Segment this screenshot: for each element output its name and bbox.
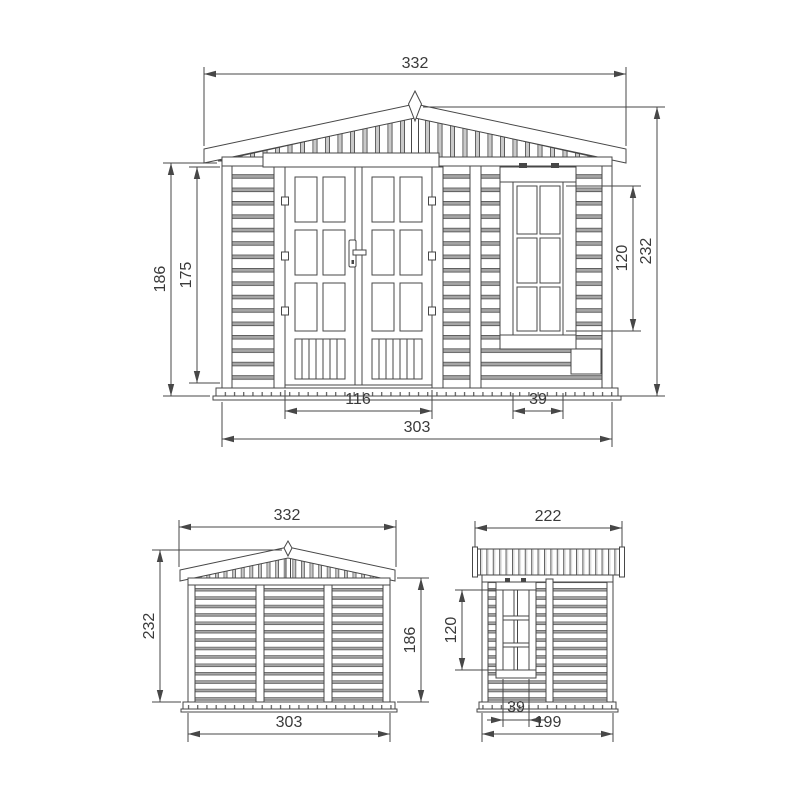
front-dim-window-width: 39 bbox=[529, 391, 547, 408]
side-window-frame-top bbox=[496, 582, 536, 590]
side-window-frame-left bbox=[496, 590, 503, 670]
front-window bbox=[500, 163, 576, 349]
rear-finial-post bbox=[286, 556, 291, 580]
rear-corner-trim-left bbox=[188, 585, 195, 702]
rear-wall-batten-left bbox=[256, 585, 264, 702]
front-corner-detail bbox=[571, 349, 601, 374]
rear-dim-base-width: 303 bbox=[276, 714, 303, 731]
side-wall-batten bbox=[546, 579, 553, 702]
side-window-hinge-right bbox=[521, 578, 526, 582]
side-window-frame-right bbox=[529, 590, 536, 670]
rear-wall-batten-right bbox=[324, 585, 332, 702]
side-roof-band bbox=[475, 549, 622, 575]
door-astragal bbox=[355, 167, 362, 385]
front-dim-roof-width: 332 bbox=[402, 55, 429, 72]
front-dim-wall-height: 186 bbox=[152, 266, 169, 293]
rear-dim-roof-width: 332 bbox=[274, 507, 301, 524]
rear-elevation-view: 332 232 186 303 bbox=[141, 507, 429, 742]
front-dim-total-height: 232 bbox=[638, 238, 655, 265]
window-sash bbox=[513, 182, 563, 335]
front-dim-window-height: 120 bbox=[614, 245, 631, 272]
side-roof-cap-right bbox=[620, 547, 625, 577]
rear-skirt bbox=[181, 709, 397, 712]
front-dim-door-width: 116 bbox=[345, 391, 371, 408]
front-skirt bbox=[213, 396, 621, 400]
side-dim-window-width: 39 bbox=[507, 699, 525, 716]
front-wall-batten bbox=[470, 166, 481, 388]
door-header bbox=[263, 153, 439, 167]
rear-corner-trim-right bbox=[383, 585, 390, 702]
rear-wall-siding bbox=[194, 585, 384, 702]
front-corner-trim-left bbox=[222, 166, 232, 388]
side-window-mullion-h2 bbox=[503, 643, 529, 647]
front-double-door bbox=[263, 153, 443, 388]
side-window-mullion-vertical bbox=[514, 590, 518, 670]
side-dim-base-depth: 199 bbox=[535, 714, 562, 731]
front-dim-base-width: 303 bbox=[404, 419, 431, 436]
side-elevation-view: 222 120 39 199 bbox=[443, 508, 625, 742]
side-dim-window-height: 120 bbox=[443, 617, 460, 644]
window-hinge-right bbox=[551, 163, 559, 168]
side-corner-trim-left bbox=[482, 582, 488, 702]
side-window-mullion-h1 bbox=[503, 616, 529, 620]
window-frame-bottom bbox=[500, 335, 576, 349]
window-frame-left bbox=[500, 182, 513, 335]
side-skirt bbox=[477, 709, 618, 712]
rear-dim-wall-height: 186 bbox=[402, 627, 419, 654]
window-frame-top bbox=[500, 167, 576, 182]
window-hinge-left bbox=[519, 163, 527, 168]
side-roof-cap-left bbox=[473, 547, 478, 577]
front-dim-door-height: 175 bbox=[178, 262, 195, 289]
shed-technical-drawing: 332 232 120 186 175 116 39 303 bbox=[0, 0, 800, 800]
rear-floor-ticks bbox=[184, 705, 394, 709]
rear-wall-top-trim bbox=[188, 578, 390, 585]
side-corner-trim-right bbox=[607, 582, 613, 702]
front-base bbox=[213, 388, 621, 400]
side-floor-ticks bbox=[480, 705, 615, 709]
window-frame-right bbox=[563, 182, 576, 335]
side-dim-roof-depth: 222 bbox=[535, 508, 562, 525]
rear-base bbox=[181, 702, 397, 712]
front-corner-trim-right bbox=[602, 166, 612, 388]
front-floor-ticks bbox=[217, 392, 617, 396]
side-base bbox=[477, 702, 618, 712]
side-window bbox=[496, 578, 536, 678]
side-window-frame-bottom bbox=[496, 670, 536, 678]
rear-dim-total-height: 232 bbox=[141, 613, 158, 640]
front-elevation-view: 332 232 120 186 175 116 39 303 bbox=[152, 55, 665, 447]
side-window-hinge-left bbox=[505, 578, 510, 582]
